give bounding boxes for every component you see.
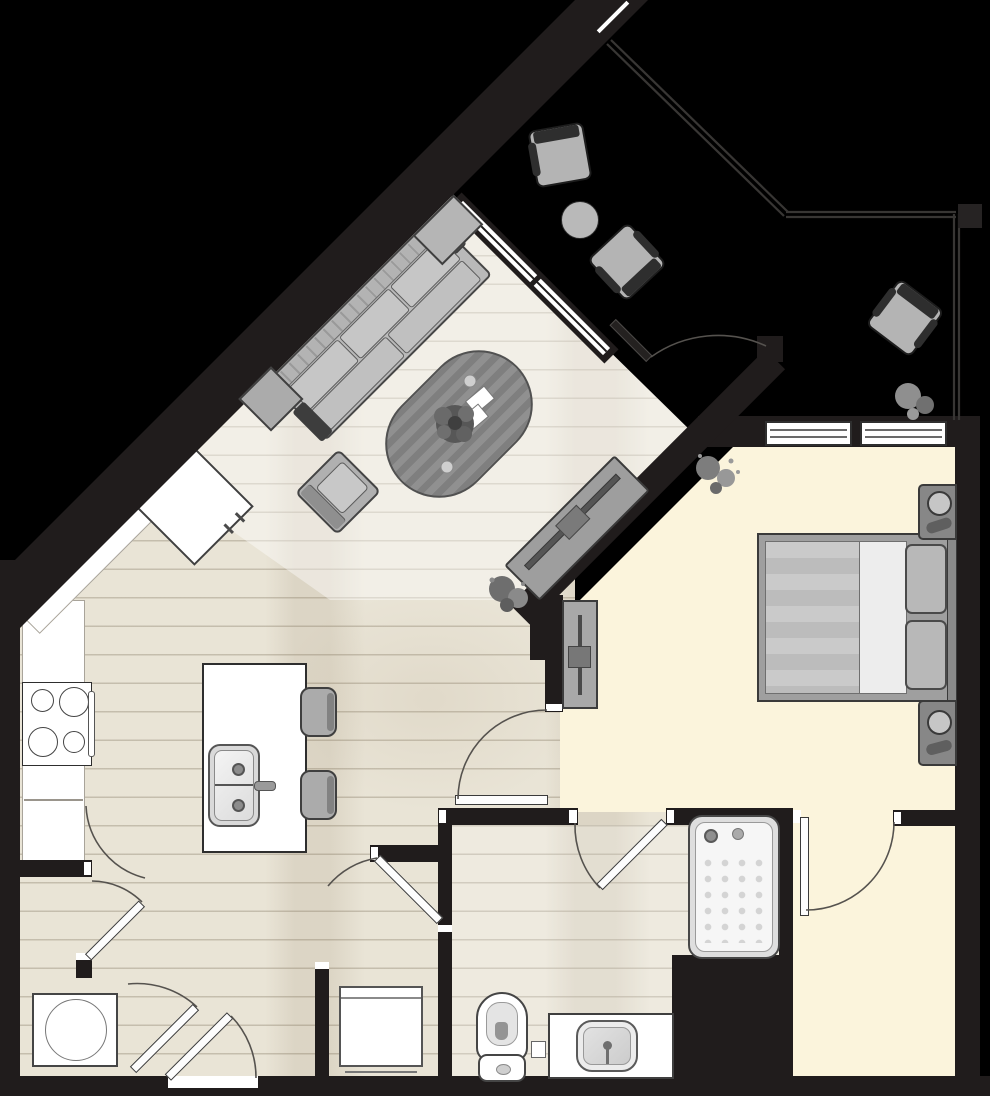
annotation-layer xyxy=(0,0,990,1096)
bedroom-plant xyxy=(696,454,740,494)
patio-railing xyxy=(607,40,959,420)
rug-plant xyxy=(434,405,474,443)
patio-plant xyxy=(895,383,934,420)
railing-post xyxy=(958,204,982,228)
door-arcs xyxy=(86,335,894,1078)
floor-plan xyxy=(0,0,990,1096)
living-room-plant xyxy=(489,576,528,612)
